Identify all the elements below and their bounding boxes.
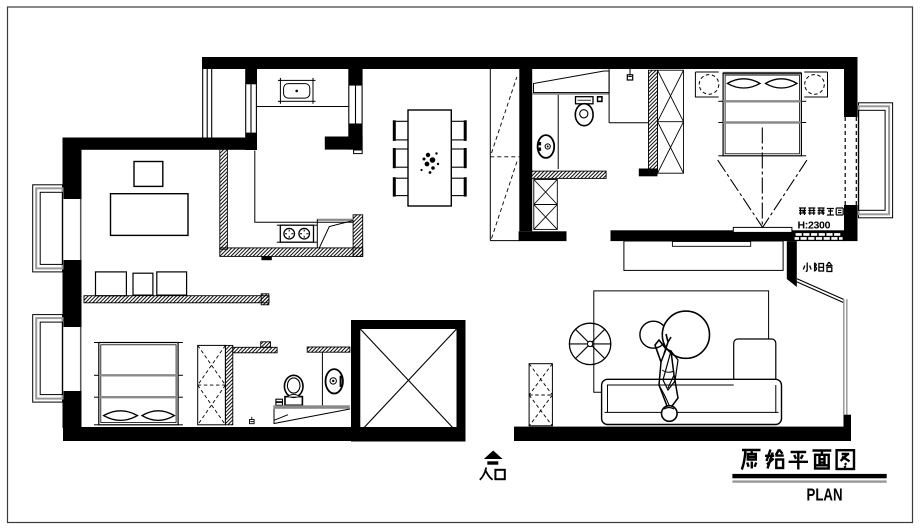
svg-text:H:2300: H:2300 bbox=[798, 220, 831, 232]
svg-text:PLAN: PLAN bbox=[807, 485, 843, 505]
